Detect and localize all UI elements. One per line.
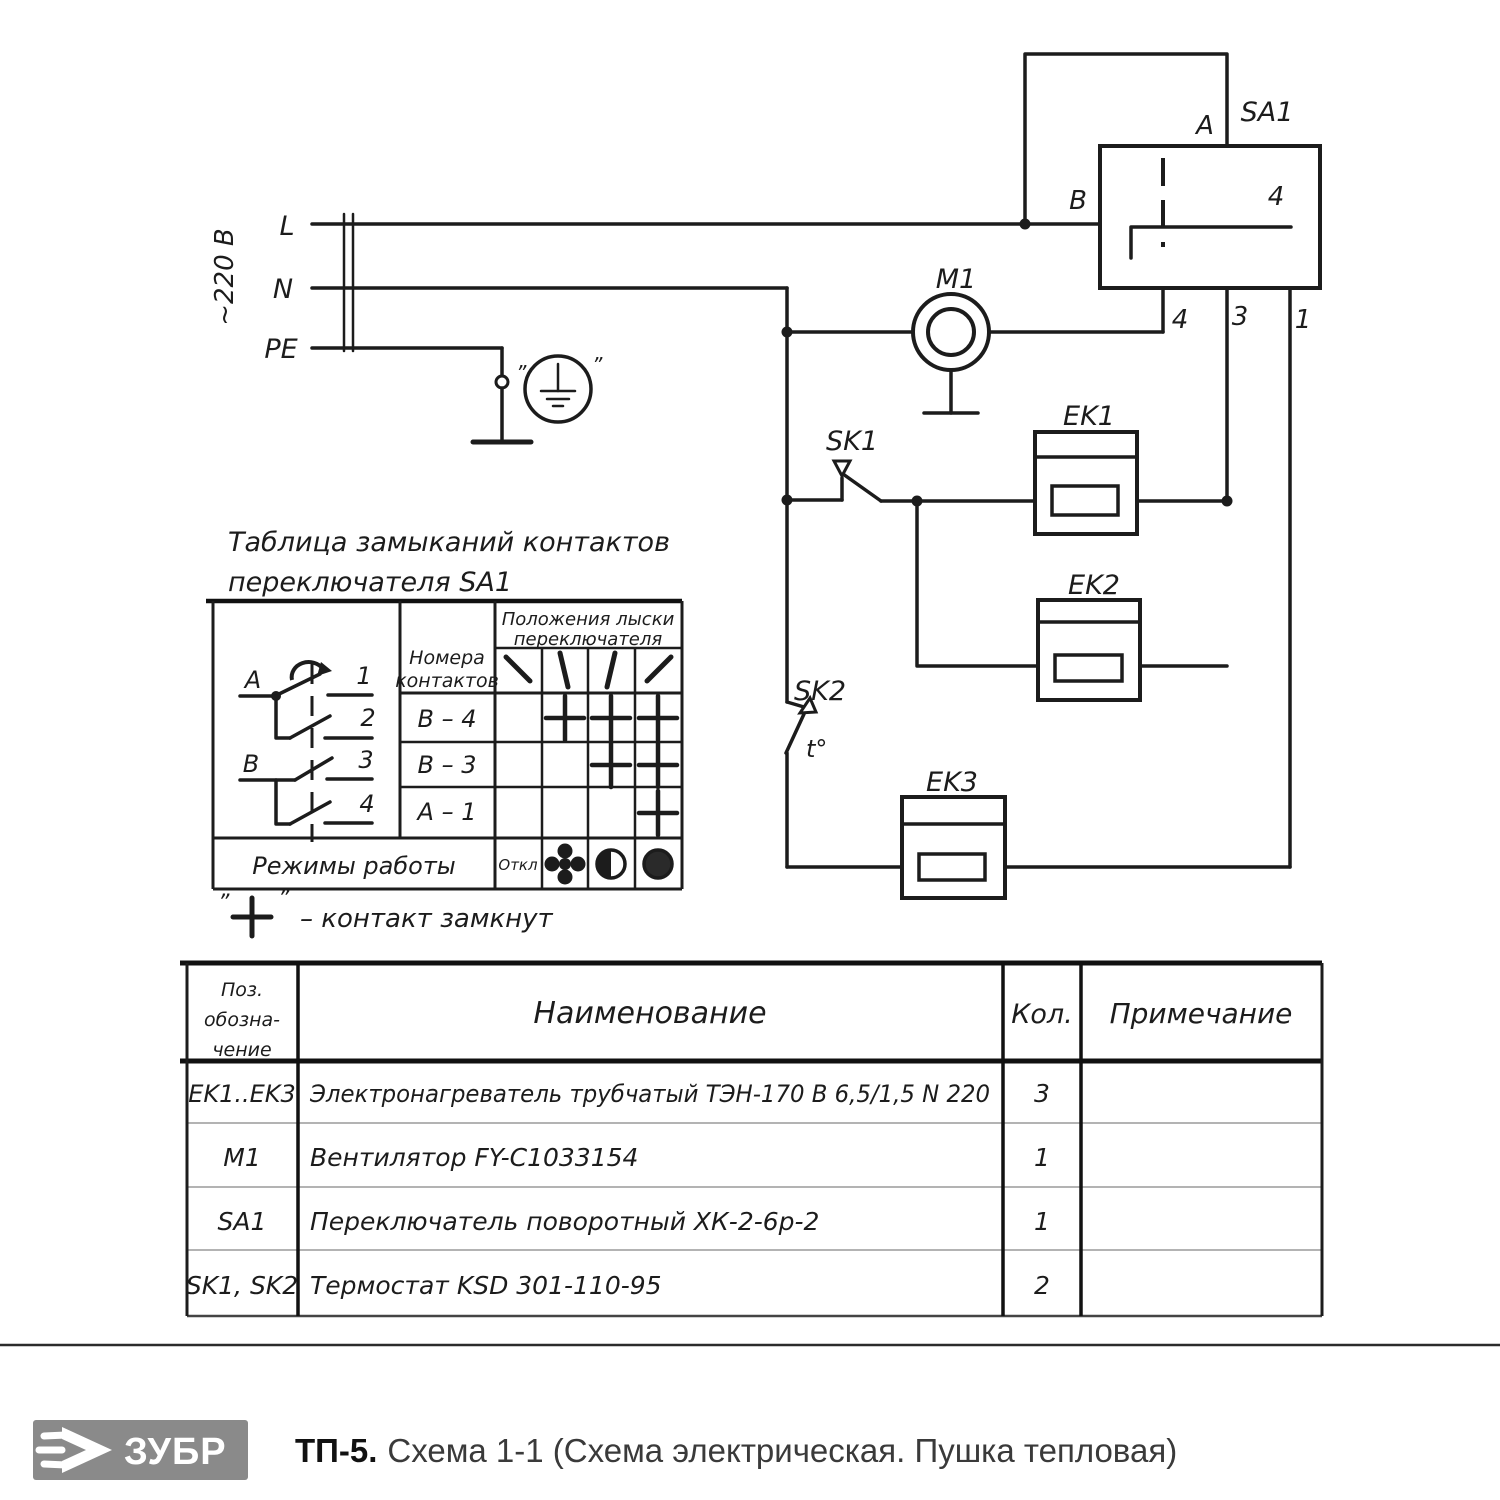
schematic-page: ~220 В L N PE ” ” SA1 A B 4 — [0, 0, 1500, 1500]
part-ref: EK1..EK3 — [188, 1080, 296, 1108]
parts-row: EK1..EK3 Электронагреватель трубчатый ТЭ… — [188, 1079, 1050, 1108]
part-ref: SK1, SK2 — [186, 1271, 298, 1300]
blade-4 — [290, 802, 330, 824]
earth-quote-right: ” — [592, 353, 603, 377]
parts-row: SA1 Переключатель поворотный ХК-2-6р-2 1 — [218, 1207, 1050, 1236]
sa1-terminal-b-label: B — [1069, 186, 1087, 216]
parts-table: Поз. обозна- чение Наименование Кол. При… — [180, 963, 1322, 1316]
pos-header-line3: чение — [212, 1039, 271, 1061]
contacts-col-header-line2: контактов — [395, 670, 499, 692]
zubr-logo: ЗУБР — [33, 1420, 248, 1480]
ek2-label: EK2 — [1068, 570, 1120, 601]
contact-2-label: 2 — [360, 704, 375, 732]
motor-inner-circle — [928, 309, 974, 355]
parts-row: M1 Вентилятор FY-C1033154 1 — [223, 1143, 1050, 1172]
neutral-branch — [782, 288, 793, 867]
part-name: Вентилятор FY-C1033154 — [310, 1143, 638, 1172]
sa1-terminal-4-label: 4 — [1172, 305, 1189, 335]
part-name: Электронагреватель трубчатый ТЭН-170 В 6… — [309, 1080, 990, 1108]
legend-text: – контакт замкнут — [300, 904, 554, 934]
sa1-contact-bar — [1131, 227, 1291, 258]
pos-header-line2: обозна- — [204, 1009, 280, 1031]
sa1-terminal-1-label: 1 — [1295, 305, 1312, 335]
part-qty: 3 — [1034, 1079, 1050, 1108]
ek3-body — [902, 797, 1005, 898]
position-3-mark-icon — [607, 653, 615, 687]
pole-b-label: В — [243, 750, 259, 778]
earth-terminal-circle — [496, 376, 508, 388]
switch-sa1: SA1 A B 4 4 3 1 — [1020, 54, 1321, 867]
blade-2 — [290, 716, 330, 738]
position-2-mark-icon — [560, 653, 568, 687]
ek3-element — [919, 854, 985, 880]
ek1-label: EK1 — [1063, 401, 1115, 432]
contact-3-label: 3 — [358, 746, 373, 774]
ek2-body — [1038, 600, 1140, 700]
positions-header-line2: переключателя — [514, 629, 663, 650]
ek3-label: EK3 — [926, 767, 978, 798]
closure-marks — [546, 696, 677, 835]
model-label: ТП-5. — [295, 1432, 377, 1469]
line-n-label: N — [273, 274, 293, 305]
caption-text: Схема 1-1 (Схема электрическая. Пушка те… — [387, 1432, 1177, 1469]
contact-table-title-line2: переключателя SA1 — [228, 567, 512, 598]
full-power-mode-icon — [644, 850, 672, 878]
contact-4-label: 4 — [359, 790, 374, 818]
sa1-contact-diagram: A В 1 2 3 4 — [240, 662, 376, 842]
contact-table: Таблица замыканий контактов переключател… — [206, 527, 682, 936]
junction-dot — [1222, 496, 1233, 507]
ek1-element — [1052, 486, 1118, 515]
contacts-col-header-line1: Номера — [409, 647, 485, 669]
earth-quote-left: ” — [516, 361, 527, 385]
footer-caption: ТП-5.Схема 1-1 (Схема электрическая. Пуш… — [295, 1432, 1177, 1469]
ek2-element — [1055, 655, 1122, 681]
earth-connection: ” ” — [473, 348, 603, 442]
part-name: Переключатель поворотный ХК-2-6р-2 — [310, 1207, 819, 1236]
sk2-blade — [786, 714, 804, 753]
junction-dot — [1020, 219, 1031, 230]
blade-1 — [277, 674, 320, 695]
brand-name: ЗУБР — [124, 1431, 227, 1473]
positions-header-line1: Положения лыски — [502, 609, 675, 630]
heater-ek3: EK3 — [787, 767, 1290, 898]
ek2-left-wire — [917, 501, 1038, 666]
modes-label: Режимы работы — [252, 852, 456, 880]
thermostat-sk2: SK2 t° — [786, 676, 846, 763]
contacts-row-label: В – 4 — [418, 705, 477, 733]
pole-a-branch — [276, 696, 290, 738]
part-ref: SA1 — [218, 1207, 267, 1236]
line-pe-label: PE — [264, 334, 297, 365]
footer: ЗУБР ТП-5.Схема 1-1 (Схема электрическая… — [0, 1345, 1500, 1480]
sk1-blade — [843, 474, 881, 501]
pole-a-label: A — [243, 666, 261, 694]
qty-header: Кол. — [1011, 999, 1073, 1030]
sa1-inner-contact-label: 4 — [1268, 182, 1285, 212]
ek1-body — [1035, 432, 1137, 534]
earth-symbol-icon — [525, 356, 591, 422]
pole-b-branch — [276, 780, 290, 824]
part-name: Термостат KSD 301-110-95 — [310, 1271, 662, 1300]
name-header: Наименование — [533, 996, 766, 1031]
motor-label: M1 — [936, 264, 976, 295]
position-4-mark-icon — [647, 657, 671, 681]
part-qty: 1 — [1034, 1143, 1050, 1172]
drawing-canvas: ~220 В L N PE ” ” SA1 A B 4 — [0, 0, 1500, 1500]
fan-mode-icon — [545, 844, 586, 885]
rotation-arc — [292, 662, 323, 680]
sa1-label: SA1 — [1241, 97, 1294, 128]
contacts-row-label: В – 3 — [418, 751, 477, 779]
closed-contact-legend: ” ” – контакт замкнут — [218, 887, 554, 936]
contact-1-label: 1 — [356, 662, 371, 690]
part-qty: 2 — [1034, 1271, 1050, 1300]
mode-off-label: Откл — [498, 856, 538, 874]
voltage-label: ~220 В — [210, 228, 240, 326]
legend-quote-right: ” — [278, 887, 290, 912]
position-1-mark-icon — [506, 657, 530, 681]
heater-ek2: EK2 — [917, 501, 1227, 700]
contacts-row-label: А – 1 — [416, 798, 477, 826]
sk1-label: SK1 — [826, 426, 878, 457]
note-header: Примечание — [1110, 997, 1293, 1030]
sk2-label: SK2 — [794, 676, 846, 707]
half-power-mode-icon — [597, 850, 625, 878]
sa1-body — [1100, 146, 1320, 288]
part-qty: 1 — [1034, 1207, 1050, 1236]
sa1-terminal-3-label: 3 — [1232, 302, 1249, 332]
parts-row: SK1, SK2 Термостат KSD 301-110-95 2 — [186, 1271, 1050, 1300]
part-ref: M1 — [223, 1143, 260, 1172]
thermostat-sk1: SK1 — [787, 426, 1035, 507]
legend-quote-left: ” — [218, 891, 230, 916]
sa1-terminal-a-label: A — [1194, 111, 1214, 141]
contact-table-title-line1: Таблица замыканий контактов — [228, 527, 670, 558]
pos-header-line1: Поз. — [221, 979, 263, 1001]
line-l-label: L — [279, 211, 294, 242]
sk2-temp-label: t° — [806, 735, 827, 763]
heater-ek1: EK1 — [1035, 401, 1233, 534]
